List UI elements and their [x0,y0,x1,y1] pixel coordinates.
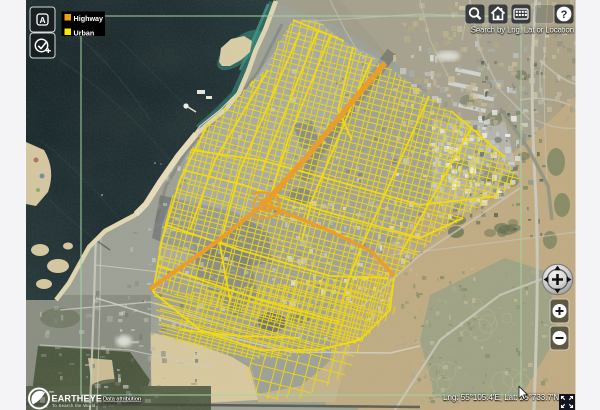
svg-text:Search by Lng, Lat or Location: Search by Lng, Lat or Location [471,26,574,35]
svg-text:Lng: 55°105.4'E, Lat: 25°733.7: Lng: 55°105.4'E, Lat: 25°733.7'N [443,393,559,402]
svg-text:Data attribution: Data attribution [103,397,141,403]
svg-text:?: ? [561,9,568,21]
svg-text:To Search the World: To Search the World [52,403,96,408]
svg-text:A: A [40,15,46,25]
svg-text:Urban: Urban [74,28,95,37]
svg-text:EARTHEYE: EARTHEYE [52,394,103,404]
svg-text:Highway: Highway [74,14,104,23]
